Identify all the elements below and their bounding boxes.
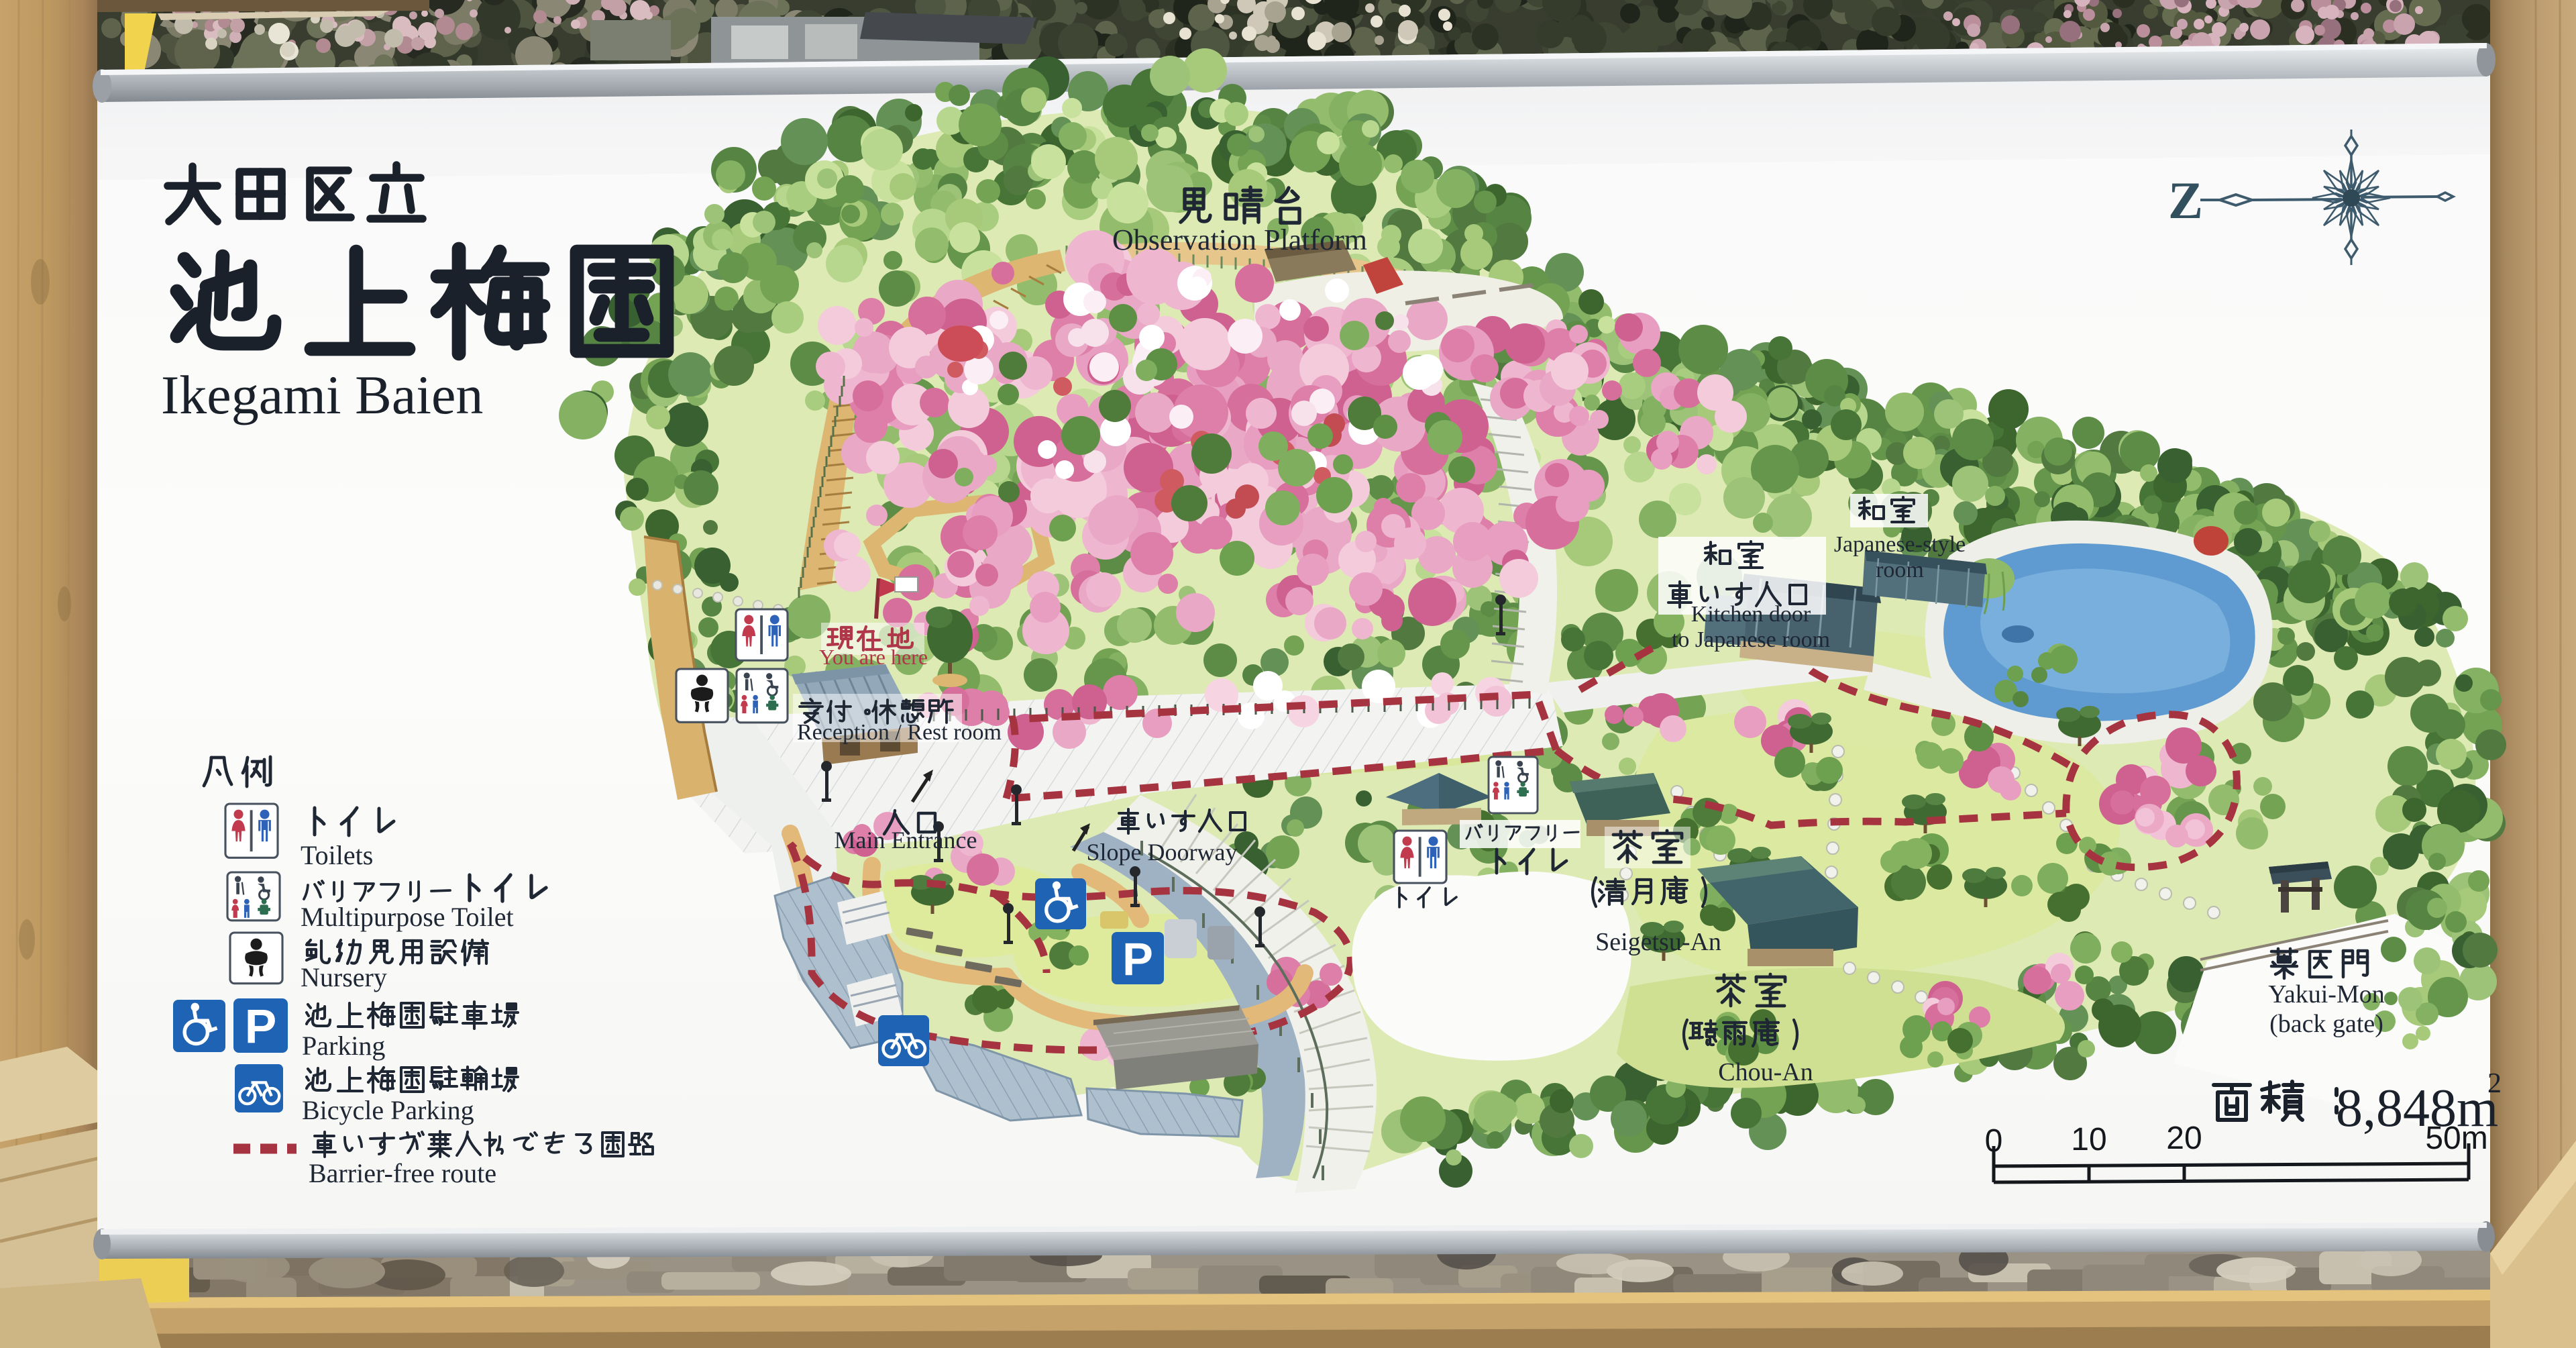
svg-text:(back gate): (back gate) — [2269, 1010, 2383, 1038]
svg-text:Nursery: Nursery — [301, 962, 387, 992]
svg-text:10: 10 — [2071, 1122, 2106, 1157]
svg-text:Observation Platform: Observation Platform — [1112, 223, 1367, 256]
svg-text:Ikegami Baien: Ikegami Baien — [161, 364, 483, 425]
svg-text:Seigetsu-An: Seigetsu-An — [1595, 928, 1721, 956]
svg-text:P: P — [245, 1000, 277, 1053]
svg-text:Z: Z — [2168, 171, 2203, 229]
svg-text:Barrier-free route: Barrier-free route — [309, 1158, 496, 1188]
svg-text:20: 20 — [2166, 1121, 2202, 1156]
svg-text:Chou-An: Chou-An — [1718, 1058, 1813, 1086]
svg-text:Slope Doorway: Slope Doorway — [1087, 839, 1238, 866]
svg-text:to Japanese room: to Japanese room — [1672, 627, 1830, 652]
svg-text:room: room — [1876, 558, 1924, 582]
svg-text:50m: 50m — [2425, 1121, 2487, 1156]
svg-text:0: 0 — [1985, 1123, 2003, 1159]
svg-text:Toilets: Toilets — [301, 840, 373, 870]
svg-text:Yakui-Mon: Yakui-Mon — [2268, 980, 2385, 1008]
svg-text:2: 2 — [2487, 1068, 2502, 1099]
svg-text:Multipurpose Toilet: Multipurpose Toilet — [301, 902, 514, 932]
svg-text:Kitchen door: Kitchen door — [1691, 602, 1811, 627]
svg-text:Japanese-style: Japanese-style — [1834, 532, 1966, 557]
svg-text:Main Entrance: Main Entrance — [835, 827, 977, 853]
svg-text:P: P — [1122, 933, 1153, 985]
svg-text:Bicycle Parking: Bicycle Parking — [302, 1095, 474, 1125]
svg-text:You are here: You are here — [819, 645, 928, 669]
svg-text:Parking: Parking — [302, 1031, 385, 1061]
svg-text:Reception / Rest room: Reception / Rest room — [797, 720, 1002, 745]
